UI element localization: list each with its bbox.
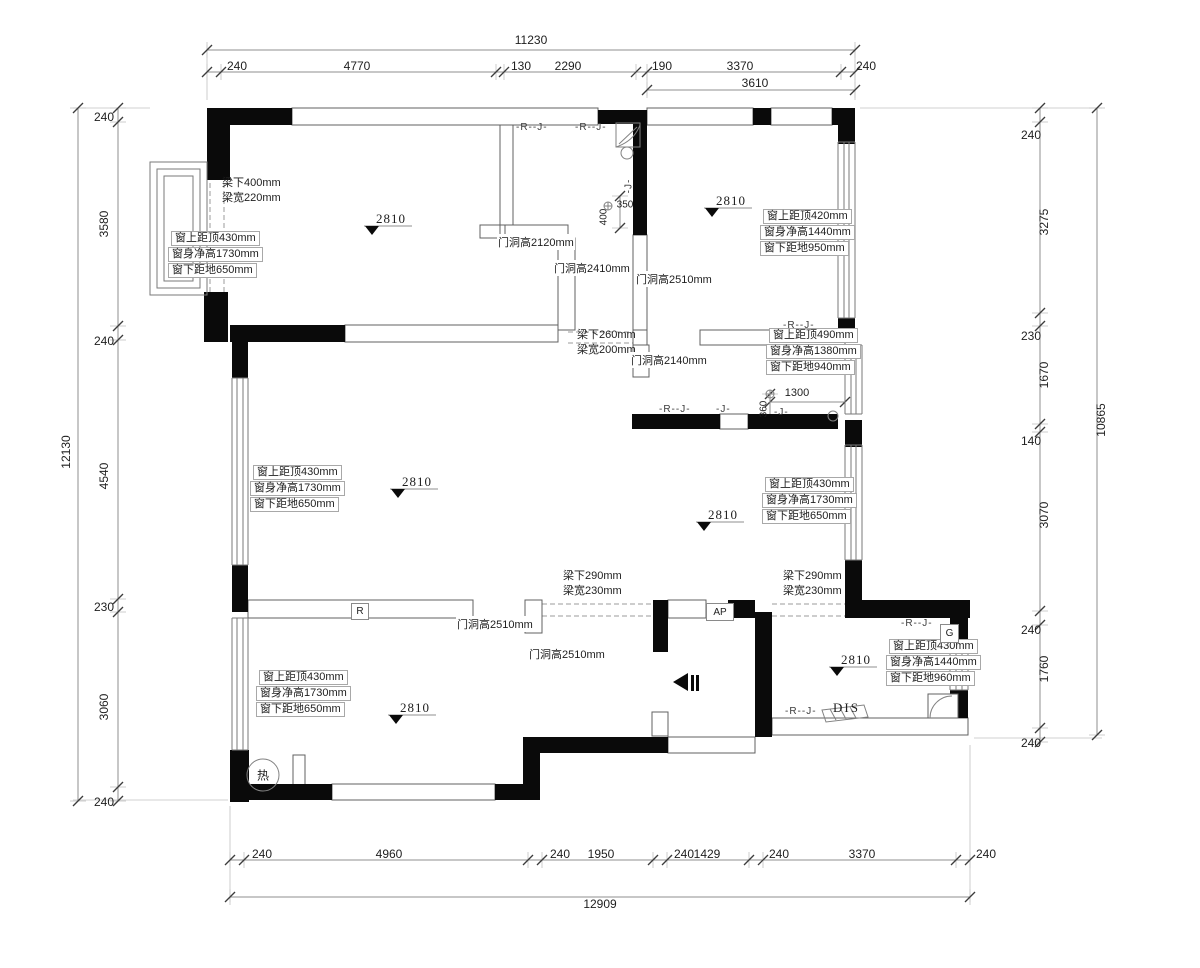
door-height-3: 门洞高2140mm — [630, 352, 708, 368]
tag-r-box: R — [351, 603, 369, 620]
tag-j-2: -J- — [624, 179, 635, 194]
window-spec-2-sill: 窗下距地940mm — [766, 360, 855, 375]
tag-j-0: -J- — [716, 404, 731, 415]
tag-rj-5: -R--J- — [785, 706, 817, 717]
dim-right-seg-8: 240 — [1021, 736, 1041, 750]
elevation-marker-2: 2810 — [402, 474, 432, 490]
window-spec-4-height: 窗身净高1730mm — [762, 493, 857, 508]
elevation-marker-0: 2810 — [376, 211, 406, 227]
window-spec-0: 窗上距顶430mm 窗身净高1730mm 窗下距地650mm — [168, 230, 263, 278]
dim-right-overall: 10865 — [1094, 403, 1108, 436]
dim-360: 360 — [759, 401, 770, 418]
window-spec-4: 窗上距顶430mm 窗身净高1730mm 窗下距地650mm — [762, 476, 857, 524]
window-spec-1: 窗上距顶420mm 窗身净高1440mm 窗下距地950mm — [760, 208, 855, 256]
dim-left-overall: 12130 — [59, 435, 73, 468]
elevation-marker-4: 2810 — [841, 652, 871, 668]
dim-bottom-seg-7: 3370 — [849, 847, 876, 861]
tag-g: G — [946, 628, 954, 639]
dim-bottom-seg-3: 1950 — [588, 847, 615, 861]
tag-rj-4: -R--J- — [901, 618, 933, 629]
dim-top-seg-1: 4770 — [344, 59, 371, 73]
tag-g-box: G — [940, 624, 959, 643]
window-spec-3: 窗上距顶430mm 窗身净高1730mm 窗下距地650mm — [250, 464, 345, 512]
tag-rj-2: -R--J- — [783, 320, 815, 331]
beam-label-1-width: 梁宽200mm — [577, 343, 636, 358]
window-spec-1-top: 窗上距顶420mm — [763, 209, 852, 224]
dim-right-seg-1: 3275 — [1037, 209, 1051, 236]
dim-top-seg-0: 240 — [227, 59, 247, 73]
window-spec-5-top: 窗上距顶430mm — [259, 670, 348, 685]
beam-label-1-under: 梁下260mm — [577, 328, 636, 343]
tag-dis: DIS — [833, 700, 860, 716]
dim-left-seg-3: 4540 — [97, 463, 111, 490]
tag-r: R — [356, 606, 363, 617]
dim-right-seg-6: 240 — [1021, 623, 1041, 637]
dim-bottom-seg-0: 240 — [252, 847, 272, 861]
window-spec-6-height: 窗身净高1440mm — [886, 655, 981, 670]
door-height-0: 门洞高2120mm — [497, 234, 575, 250]
dim-left-seg-6: 240 — [94, 795, 114, 809]
dim-350: 350 — [617, 200, 634, 211]
window-spec-3-height: 窗身净高1730mm — [250, 481, 345, 496]
tag-rj-1: -R--J- — [575, 122, 607, 133]
window-spec-4-top: 窗上距顶430mm — [765, 477, 854, 492]
dim-left-seg-1: 3580 — [97, 211, 111, 238]
elevation-marker-3: 2810 — [708, 507, 738, 523]
dim-right-seg-0: 240 — [1021, 128, 1041, 142]
elevation-marker-5: 2810 — [400, 700, 430, 716]
beam-label-3-under: 梁下290mm — [783, 569, 842, 584]
dim-right-seg-4: 140 — [1021, 434, 1041, 448]
dim-top-seg-2: 130 — [511, 59, 531, 73]
dim-left-seg-4: 230 — [94, 600, 114, 614]
window-spec-0-height: 窗身净高1730mm — [168, 247, 263, 262]
window-spec-6-sill: 窗下距地960mm — [886, 671, 975, 686]
dim-left-seg-0: 240 — [94, 110, 114, 124]
tag-ap-box: AP — [706, 603, 734, 621]
window-spec-1-sill: 窗下距地950mm — [760, 241, 849, 256]
beam-label-2: 梁下290mm 梁宽230mm — [563, 569, 622, 599]
window-spec-5-height: 窗身净高1730mm — [256, 686, 351, 701]
plan-linework — [0, 0, 1200, 968]
beam-label-2-under: 梁下290mm — [563, 569, 622, 584]
window-spec-2-height: 窗身净高1380mm — [766, 344, 861, 359]
tag-ap: AP — [713, 607, 726, 618]
beam-label-3-width: 梁宽230mm — [783, 584, 842, 599]
dim-right-seg-7: 1760 — [1037, 656, 1051, 683]
dim-left-seg-2: 240 — [94, 334, 114, 348]
dim-right-seg-2: 230 — [1021, 329, 1041, 343]
window-spec-1-height: 窗身净高1440mm — [760, 225, 855, 240]
window-spec-3-sill: 窗下距地650mm — [250, 497, 339, 512]
door-height-4: 门洞高2510mm — [456, 616, 534, 632]
dim-top-overall: 11230 — [515, 33, 547, 47]
beam-label-0-under: 梁下400mm — [222, 176, 281, 191]
tag-j-1: -J- — [774, 407, 789, 418]
dim-top-seg-4: 190 — [652, 59, 672, 73]
beam-label-2-width: 梁宽230mm — [563, 584, 622, 599]
window-spec-2: 窗上距顶490mm 窗身净高1380mm 窗下距地940mm — [766, 327, 861, 375]
beam-label-0: 梁下400mm 梁宽220mm — [222, 176, 281, 206]
tag-rj-3: -R--J- — [659, 404, 691, 415]
dim-bottom-seg-8: 240 — [976, 847, 996, 861]
dim-right-seg-5: 3070 — [1037, 502, 1051, 529]
window-spec-0-top: 窗上距顶430mm — [171, 231, 260, 246]
dim-400: 400 — [599, 209, 610, 226]
dim-top-seg-3: 2290 — [555, 59, 582, 73]
tag-heater: 热 — [257, 767, 269, 784]
window-spec-6: 窗上距顶430mm 窗身净高1440mm 窗下距地960mm — [886, 638, 981, 686]
tag-rj-0: -R--J- — [516, 122, 548, 133]
beam-label-3: 梁下290mm 梁宽230mm — [783, 569, 842, 599]
door-height-1: 门洞高2410mm — [553, 260, 631, 276]
dim-top-sub: 3610 — [742, 76, 769, 90]
window-spec-3-top: 窗上距顶430mm — [253, 465, 342, 480]
dim-bottom-seg-1: 4960 — [376, 847, 403, 861]
beam-label-0-width: 梁宽220mm — [222, 191, 281, 206]
floor-plan: 11230 240 4770 130 2290 190 3370 240 361… — [0, 0, 1200, 968]
dim-bottom-seg-4: 240 — [674, 847, 694, 861]
dim-bottom-seg-2: 240 — [550, 847, 570, 861]
door-height-5: 门洞高2510mm — [528, 646, 606, 662]
window-spec-6-top: 窗上距顶430mm — [889, 639, 978, 654]
window-spec-4-sill: 窗下距地650mm — [762, 509, 851, 524]
dim-left-seg-5: 3060 — [97, 694, 111, 721]
door-height-2: 门洞高2510mm — [635, 271, 713, 287]
dim-top-seg-6: 240 — [856, 59, 876, 73]
dim-bottom-seg-6: 240 — [769, 847, 789, 861]
dim-1300: 1300 — [785, 387, 809, 399]
window-spec-5-sill: 窗下距地650mm — [256, 702, 345, 717]
window-spec-0-sill: 窗下距地650mm — [168, 263, 257, 278]
dim-bottom-seg-5: 1429 — [694, 847, 721, 861]
beam-label-1: 梁下260mm 梁宽200mm — [577, 328, 636, 358]
elevation-marker-1: 2810 — [716, 193, 746, 209]
dim-top-seg-5: 3370 — [727, 59, 754, 73]
dim-right-seg-3: 1670 — [1037, 362, 1051, 389]
dim-bottom-overall: 12909 — [583, 897, 616, 911]
window-spec-5: 窗上距顶430mm 窗身净高1730mm 窗下距地650mm — [256, 669, 351, 717]
